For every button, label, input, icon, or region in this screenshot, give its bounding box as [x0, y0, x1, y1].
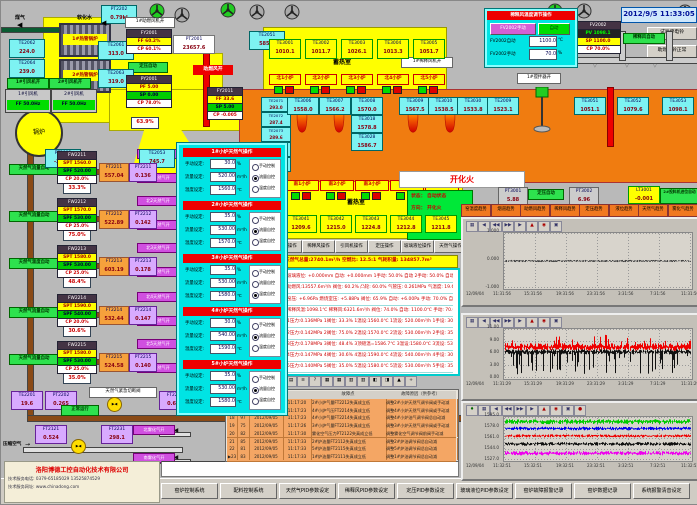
gas-ft-ft2214-value: 532.44 [100, 315, 128, 323]
te2201-box: TE2201 19.6 [11, 391, 43, 410]
radio-label: 流量自控 [259, 386, 275, 392]
y-axis-label: -1.000 [465, 284, 499, 289]
sensor-tag: TE2201 [12, 392, 42, 400]
field-input-manual[interactable]: 35.0 [210, 265, 236, 275]
chart-toolbar-icon[interactable]: ◉ [550, 405, 562, 416]
radio-icon [252, 334, 259, 341]
controller-title: PY2001 [127, 76, 171, 83]
gas-controller-fw2212: FW2212SPT 1570.0SPF 530.00CP 25.0% [57, 198, 97, 231]
crown-te-te3053: TE30531098.1 [662, 97, 694, 115]
radio-icon [252, 345, 259, 352]
trend-chart-2: ▦◀◀◀▶▶▶▲◉▣11.009.006.003.000.0012/09/041… [461, 313, 697, 401]
trend-button-5[interactable]: 定压趋势 [579, 204, 609, 217]
field-label: 手动设定: [185, 267, 204, 273]
feeder-auto-label: 2#投料机进位自动 [660, 188, 697, 204]
alarm-cell: 调整4#小炉油气调节阀总自动减 [385, 414, 458, 422]
radio-option[interactable]: 温度自控 [252, 237, 280, 247]
process-values-row: 3压力:0.178MPa 3阀位: 48.4% 3顶碹温=1586.7℃ 3温设… [287, 339, 453, 351]
field-input-flow[interactable]: 540.00 [210, 331, 236, 341]
field-input-temp[interactable]: 1590.0 [210, 344, 236, 354]
x-axis-label: 19:31:29 [556, 381, 574, 386]
alarm-cell: 4#小炉气量FT2214失真成立低 [311, 414, 387, 422]
north-te-te3004: TE30041013.3 [377, 39, 409, 59]
sensor-value: 298.1 [102, 434, 132, 442]
radio-option[interactable]: 手动控制 [252, 321, 280, 331]
x-axis-date: 12/09/04 [466, 291, 484, 296]
radio-option[interactable]: 温度自控 [252, 396, 280, 406]
status-row: 状态： 自动状态 [408, 191, 472, 203]
crown-te-te3007-tag: TE3007 [320, 98, 350, 106]
radio-option[interactable]: 流量自控 [252, 226, 280, 236]
pressure-auto-label-2: 定压自动 [528, 189, 564, 200]
chart-toolbar-icon[interactable]: ▣ [562, 405, 574, 416]
gas-controller-fw2214: FW2214SPT 1590.0SPF 540.00CP 20.0% [57, 294, 97, 327]
chart-toolbar-icon[interactable]: ▲ [526, 317, 538, 328]
alarm-toolbar-icon[interactable]: + [405, 376, 417, 387]
radio-option[interactable]: 手动控制 [252, 268, 280, 278]
manual-mode-button[interactable]: FV2002手动 [490, 23, 536, 35]
process-values-row: 2压力:0.142MPa 2阀位: 75.0% 2温设:1570.0℃ 2流设:… [287, 328, 453, 340]
gas-pt-pt2211: PT22110.136 [129, 163, 157, 182]
gas-ft-ft2214-tag: FT2214 [100, 307, 128, 315]
field-input-flow[interactable]: 530.00 [210, 225, 236, 235]
gas-pt-pt2213-tag: PT2213 [130, 258, 156, 266]
x-axis-label: 11:31:56 [681, 291, 697, 296]
chart-toolbar-icon[interactable]: ◉ [538, 221, 550, 232]
panel-title: 4#小炉天然气操作 [183, 307, 281, 316]
controller-title: FW2212 [58, 199, 96, 206]
alarm-cell: 2#小炉气量FT2212失真成立低 [311, 399, 387, 407]
crown-te-te3051-value: 1051.1 [575, 106, 605, 114]
radio-option[interactable]: 温度自控 [252, 343, 280, 353]
crown-te-te3051-tag: TE3051 [575, 98, 605, 106]
gas-pt-pt2212-tag: PT2212 [130, 211, 156, 219]
fan-status-label-2: 2#引风机开 [49, 78, 91, 89]
gas-pt-pt2215: PT22150.140 [129, 353, 157, 372]
radio-option[interactable]: 流量自控 [252, 279, 280, 289]
trend-button-4[interactable]: 稀释风趋势 [550, 204, 580, 217]
alarm-cell: 11:17:30 [283, 430, 312, 438]
north-te-te3002: TE30021011.7 [305, 39, 337, 59]
gas-pt-pt2212-value: 0.142 [130, 219, 156, 227]
radio-label: 温度自控 [259, 291, 275, 297]
crown-te-te3028-value: 1586.7 [352, 142, 382, 150]
alarm-cell: 2#炉油量FT2112失真成立低 [311, 438, 387, 446]
furnace-gas-panel-4: 4#小炉天然气操作手动设定:30.0%流量设定:540.00m³/h温度设定:1… [183, 307, 281, 357]
x-axis-date: 12/09/04 [466, 463, 484, 468]
alarm-row[interactable]: ▶23832012/09/0511:17:331#炉油量FT2111失真成立低调… [227, 453, 456, 462]
controller-cp: CP 20.0% [58, 318, 96, 326]
controller-spf: SPF 540.00 [58, 310, 96, 318]
gas-ft-ft2211-tag: FT2211 [100, 164, 128, 172]
fan-icon [149, 3, 165, 19]
radio-icon [252, 270, 259, 277]
field-input-manual[interactable]: 30.0 [210, 318, 236, 328]
radio-icon [252, 376, 259, 383]
radio-label: 手动控制 [259, 216, 275, 222]
north-te-te3001-tag: TE3001 [270, 40, 300, 48]
ops-button-5[interactable]: 玻璃液位操作 [401, 240, 434, 253]
radio-label: 流量自控 [259, 280, 275, 286]
alarm-toolbar-icon[interactable]: ▥ [357, 376, 369, 387]
bottom-button-5[interactable]: 定压PID参数设定 [397, 483, 454, 499]
crown-te-te3052-value: 1079.6 [618, 106, 648, 114]
field-unit: m³/h [237, 333, 247, 338]
radio-option[interactable]: 流量自控 [252, 332, 280, 342]
controller-spf: SPF 520.00 [58, 167, 96, 175]
manual-setpoint-input[interactable]: 70.0 [529, 49, 557, 60]
damper-position-box: 63.9% [131, 117, 159, 129]
indicator-red [321, 86, 330, 94]
alarm-cell: 2012/09/05 [249, 438, 284, 446]
pt3002-box: PT30026.96 [569, 187, 599, 205]
bottom-button-8[interactable]: 窑炉数据记录 [574, 483, 631, 499]
field-input-temp[interactable]: 1570.0 [210, 238, 236, 248]
north-te-te3004-value: 1013.3 [378, 48, 408, 56]
crown-te-te2009-value: 1523.1 [488, 106, 518, 114]
crown-te-te2009: TE20091523.1 [487, 97, 519, 115]
north-te-te3002-value: 1011.7 [306, 48, 336, 56]
gas-ft-ft2212-value: 522.89 [100, 219, 128, 227]
gas-controller-fw2211: FW2211SPT 1560.0SPF 520.00CP 20.0% [57, 151, 97, 184]
bottom-button-2[interactable]: 配料控制系统 [220, 483, 277, 499]
controller-cp: CP 25.0% [58, 269, 96, 277]
sensor-tag: PT2001 [174, 36, 214, 44]
alarm-cell: 调整雾化空气调节阀前阀手动减 [385, 430, 458, 438]
chart-toolbar-icon[interactable]: ▲ [526, 221, 538, 232]
crown-te-te3006-tag: TE3006 [288, 98, 318, 106]
controller-row: SP 1100.0 [576, 37, 620, 45]
auto-setpoint-label: FV2002自动 [490, 38, 515, 44]
field-label: 温度设定: [185, 293, 204, 299]
crown-te-te3030-tag: TE3030 [458, 98, 488, 106]
field-unit: m³/h [237, 227, 247, 232]
field-input-temp[interactable]: 1580.0 [210, 397, 236, 407]
field-label: 手动设定: [185, 214, 204, 220]
alarm-toolbar-icon[interactable]: ◨ [381, 376, 393, 387]
field-unit: % [237, 214, 241, 219]
alarm-cell: 3#小炉气量FT2213失真成立低 [311, 422, 387, 430]
lt3001-box: LT3001-0.001 [628, 186, 660, 204]
melter-te-te2073: TE2073289.6 [261, 127, 291, 142]
fy2011-controller: FY2011 FF 33.6 SP 5.00 CP -0.005 [207, 87, 243, 120]
controller-spf: SPF 530.00 [58, 357, 96, 365]
message-bar[interactable] [161, 461, 459, 477]
x-axis-label: 11:32:51 [681, 463, 697, 468]
field-unit: % [237, 267, 241, 272]
sensor-tag: FT2121 [36, 426, 66, 434]
x-axis-label: 3:31:29 [618, 381, 633, 386]
sensor-tag: PT2202 [102, 6, 136, 14]
field-input-manual[interactable]: 30.0 [210, 159, 236, 169]
controller-row: CP 60.1% [127, 45, 171, 53]
fan-icon [174, 7, 190, 23]
crown-te-te3009: TE30091567.5 [399, 97, 431, 115]
process-values-panel: 玻璃液位: +0.000mm 自动: +0.000mm 1手动: 50.0% 自… [284, 268, 460, 376]
ft2231-box: FT2231 298.1 [101, 425, 133, 444]
auto-setpoint-input[interactable]: 1100.0 [529, 36, 557, 47]
bottom-button-9[interactable]: 系统报警清音设定 [633, 483, 690, 499]
company-tel: 技术服务电话: 0379-65185029 13525874529 [8, 476, 159, 482]
alarm-cell: 5#炉油量FT2115失真成立低 [311, 445, 387, 453]
controller-row: CP -0.005 [208, 111, 242, 119]
gas-controller-fw2213: FW2213SPT 1580.0SPF 530.00CP 25.0% [57, 245, 97, 278]
company-info: 洛阳博德工控自动化技术有限公司 技术服务电话: 0379-65185029 13… [4, 461, 160, 503]
auto-mode-button[interactable]: 自动 [538, 23, 570, 35]
radio-option[interactable]: 手动控制 [252, 374, 280, 384]
radio-option[interactable]: 手动控制 [252, 215, 280, 225]
field-input-flow[interactable]: 520.00 [210, 172, 236, 182]
chart-toolbar-icon[interactable]: ▶ [526, 405, 538, 416]
radio-label: 手动控制 [259, 163, 275, 169]
alarm-toolbar-icon[interactable]: ▥ [345, 376, 357, 387]
radio-icon [252, 281, 259, 288]
field-unit: % [237, 373, 241, 378]
fan-unit-name: 1#引风机 [6, 90, 50, 100]
controller-row: CP 70.0% [576, 45, 620, 53]
alarm-cell: 调整5#炉油调节阀总自动减 [385, 445, 458, 453]
x-axis-label: 15:32:51 [524, 463, 542, 468]
process-values-row: 4压力:0.147MPa 4阀位: 30.6% 4温设:1590.0℃ 4流设:… [287, 350, 453, 362]
north-te-te3003: TE30031026.1 [341, 39, 373, 59]
controller-spt: SPT 1590.0 [58, 302, 96, 310]
sensor-value: 23657.6 [174, 44, 214, 52]
crown-te-te3030: TE30301533.8 [457, 97, 489, 115]
chart-toolbar-icon[interactable]: ▶ [514, 221, 526, 232]
alarm-cell: 11:17:20 [283, 399, 312, 407]
indicator-red [429, 86, 438, 94]
lt3001-box-tag: LT3001 [629, 187, 659, 195]
north-port-label-3: 北3小炉 [341, 74, 373, 85]
chart-toolbar-icon[interactable]: ▲ [538, 405, 550, 416]
trend-button-7[interactable]: 天然气趋势 [638, 204, 668, 217]
field-input-manual[interactable]: 35.0 [210, 371, 236, 381]
sensor-te2064-tag: TE2064 [10, 60, 44, 68]
bottom-button-1[interactable]: 窑炉控制系统 [161, 483, 218, 499]
y-axis-label: 3.00 [465, 362, 499, 367]
mode-radio-group: 手动控制流量自控温度自控 [249, 318, 281, 357]
alarm-cell: 11:17:33 [283, 453, 312, 461]
controller-title: FW2214 [58, 295, 96, 302]
gas-pt-pt2214-value: 0.147 [130, 315, 156, 323]
chart-toolbar-icon[interactable]: ▶▶ [502, 317, 514, 328]
gas-mode-label-5: 天然气流量自动 [9, 354, 59, 365]
sensor-te2064-value: 239.0 [10, 68, 44, 76]
gas-pt-pt2215-value: 0.140 [130, 362, 156, 370]
alarm-toolbar-icon[interactable]: ◧ [369, 376, 381, 387]
north-te-te3005-tag: TE3005 [414, 40, 444, 48]
trend-chart-1: ▦◀◀◀▶▶▶▲◉▣1.0000.000-1.00012/09/0411:31:… [461, 217, 697, 307]
damper-bar-right [607, 87, 614, 147]
field-label: 温度设定: [185, 187, 204, 193]
ft2121-box: FT2121 0.524 [35, 425, 67, 444]
radio-icon [252, 292, 259, 299]
trend-button-8[interactable]: 雾化气趋势 [668, 204, 697, 217]
north-te-te3003-tag: TE3003 [342, 40, 372, 48]
radio-icon [252, 164, 259, 171]
crown-te-te3008: TE30081570.0 [351, 97, 383, 115]
field-unit: % [237, 161, 241, 166]
south-te-te3042-tag: TE3042 [321, 216, 351, 224]
alarm-cell: 调整2#炉油调节阀总自动减 [385, 438, 458, 446]
alarm-toolbar-icon[interactable]: ▲ [393, 376, 405, 387]
fan-icon [284, 4, 300, 20]
alarm-toolbar-icon[interactable]: ? [309, 376, 321, 387]
south-te-te3044-tag: TE3044 [391, 216, 421, 224]
north-te-te3005: TE30051051.7 [413, 39, 445, 59]
south-te-te3045-value: 1211.8 [426, 224, 456, 232]
field-input-flow[interactable]: 530.00 [210, 278, 236, 288]
trend-button-3[interactable]: 助燃风趋势 [520, 204, 550, 217]
radio-option[interactable]: 流量自控 [252, 173, 280, 183]
valve-open-north-5: 北5天然气开 [137, 339, 179, 349]
crown-te-te3010-tag: TE3010 [429, 98, 459, 106]
ops-button-2[interactable]: 稀释风操作 [302, 240, 335, 253]
field-unit: ℃ [237, 293, 242, 298]
radio-label: 手动控制 [259, 322, 275, 328]
furnace-gas-panel-2: 2#小炉天然气操作手动设定:35.0%流量设定:530.00m³/h温度设定:1… [183, 201, 281, 251]
chart-toolbar-icon[interactable]: ▣ [550, 221, 562, 232]
radio-label: 温度自控 [259, 238, 275, 244]
chart-toolbar-icon[interactable]: ▶▶ [514, 405, 526, 416]
alarm-cell: 调整4#小炉天然气调节阀或手动减 [385, 407, 458, 415]
chart-toolbar-icon[interactable]: ▶ [514, 317, 526, 328]
bottom-button-6[interactable]: 玻璃液位PID参数设定 [456, 483, 513, 499]
emergency-valve-icon: ▶◀ [71, 439, 86, 454]
manual-setpoint-unit: % [558, 51, 562, 56]
radio-option[interactable]: 手动控制 [252, 162, 280, 172]
south-te-te3045-tag: TE3045 [426, 216, 456, 224]
gas-ft-ft2213: FT2213603.19 [99, 257, 129, 276]
crown-te-te3010-value: 1538.5 [429, 106, 459, 114]
alarm-cell: 2012/09/05 [249, 414, 284, 422]
radio-option[interactable]: 温度自控 [252, 184, 280, 194]
radio-icon [252, 217, 259, 224]
controller-title: FW2215 [58, 342, 96, 349]
north-port-label-1: 北1小炉 [269, 74, 301, 85]
gas-output-box: 48.4% [63, 277, 91, 288]
gas-pt-pt2213: PT22130.178 [129, 257, 157, 276]
y-axis-label: 1544.0 [465, 445, 499, 450]
melter-te-te2073-value: 289.6 [262, 135, 290, 141]
py2001-controller: PY2001 PF 5.00 SP 0.00 CP 78.0% [126, 75, 172, 108]
alarm-toolbar-icon[interactable]: ▦ [321, 376, 333, 387]
col-fault-point: 故障点 [311, 391, 385, 399]
field-input-temp[interactable]: 1560.0 [210, 185, 236, 195]
ops-button-4[interactable]: 定压操作 [368, 240, 401, 253]
x-axis-label: 23:32:51 [587, 463, 605, 468]
radio-option[interactable]: 流量自控 [252, 385, 280, 395]
alarm-toolbar-icon[interactable]: ≡ [297, 376, 309, 387]
fan-icon [249, 4, 265, 20]
pt3001-box: PT30015.88 [498, 187, 528, 205]
x-axis-label: 23:31:29 [587, 381, 605, 386]
south-te-te3042-value: 1215.0 [321, 224, 351, 232]
controller-spt: SPT 1570.0 [58, 206, 96, 214]
company-name: 洛阳博德工控自动化技术有限公司 [5, 465, 159, 474]
pipe [27, 149, 34, 421]
south-te-te3045: TE30451211.8 [425, 215, 457, 233]
fan-unit-name: 2#引风机 [52, 90, 96, 100]
crown-te-te3009-value: 1567.5 [400, 106, 430, 114]
field-input-flow[interactable]: 530.00 [210, 384, 236, 394]
controller-title: FY2001 [127, 30, 171, 37]
dilution-auto-label: 稀释风自动 [623, 33, 665, 44]
field-input-temp[interactable]: 1580.0 [210, 291, 236, 301]
field-unit: % [237, 320, 241, 325]
gas-output-box: 33.3% [63, 183, 91, 194]
indicator-green [382, 86, 391, 94]
controller-row: PV 1098.1 [576, 29, 620, 37]
chart-toolbar-icon[interactable]: ● [574, 405, 586, 416]
radio-label: 手动控制 [259, 375, 275, 381]
gas-output-box: 35.0% [63, 373, 91, 384]
radio-icon [252, 398, 259, 405]
ops-button-3[interactable]: 引风机操作 [335, 240, 368, 253]
x-axis-label: 7:31:56 [650, 291, 665, 296]
alarm-toolbar-icon[interactable]: ▦ [333, 376, 345, 387]
radio-label: 手动控制 [259, 269, 275, 275]
indicator-red [337, 192, 346, 200]
fan-unit-2: 2#引风机FF 50.0Hz [51, 89, 97, 113]
valve-open-north-3: 北3天然气开 [137, 243, 179, 253]
south-port-label-3: 南3小炉 [355, 180, 389, 191]
chart-toolbar-icon[interactable]: ▶▶ [502, 221, 514, 232]
south-port-label-2: 南2小炉 [320, 180, 354, 191]
indicator-green [396, 192, 405, 200]
bottom-button-7[interactable]: 窑炉故障报警记录 [515, 483, 572, 499]
south-te-te3044: TE30441212.8 [390, 215, 422, 233]
panel-title: 1#小炉天然气操作 [183, 148, 281, 157]
gas-mode-label-4: 天然气流量自动 [9, 307, 59, 318]
trend-button-2[interactable]: 烟道趋势 [491, 204, 521, 217]
crown-te-te3028: TE30281586.7 [351, 133, 383, 151]
field-input-manual[interactable]: 35.0 [210, 212, 236, 222]
gas-status-label: 正常运行 [61, 405, 99, 416]
chart-toolbar-icon[interactable]: ◉ [538, 317, 550, 328]
gas-inlet-label: 煤气 [15, 14, 25, 21]
fy2001-controller: FY2001 FF 60.2% CP 60.1% [126, 29, 172, 54]
indicator-green [361, 192, 370, 200]
gas-ft-ft2212: FT2212522.89 [99, 210, 129, 229]
bottom-button-4[interactable]: 稀释风PID参数设定 [338, 483, 395, 499]
clock: 2012/9/5 11:33:05 [621, 7, 697, 23]
x-axis-label: 15:31:56 [524, 291, 542, 296]
company-web: 技术服务网址: www.chinadong.com [8, 484, 159, 490]
controller-spt: SPT 1560.0 [58, 159, 96, 167]
x-axis-label: 11:31:29 [681, 381, 697, 386]
valve-open-north-4: 北4天然气开 [137, 292, 179, 302]
x-axis-label: 19:32:51 [556, 463, 574, 468]
controller-spt: SPT 1580.0 [58, 253, 96, 261]
field-unit: ℃ [237, 399, 242, 404]
trend-button-1[interactable]: 窑温度趋势 [461, 204, 491, 217]
furnace-gas-panel-1: 1#小炉天然气操作手动设定:30.0%流量设定:520.00m³/h温度设定:1… [183, 148, 281, 198]
radio-label: 温度自控 [259, 397, 275, 403]
trend-button-6[interactable]: 液位趋势 [609, 204, 639, 217]
controller-title: FW2211 [58, 152, 96, 159]
pt3001-box-value: 5.88 [499, 196, 527, 204]
radio-option[interactable]: 温度自控 [252, 290, 280, 300]
bottom-button-3[interactable]: 天然气PID参数设定 [279, 483, 336, 499]
chart-toolbar-icon[interactable]: ◀◀ [502, 405, 514, 416]
x-axis-label: 15:31:29 [524, 381, 542, 386]
soft-water-label: 软化水 [77, 14, 92, 21]
flow-arrow-icon: ◀ [17, 21, 22, 29]
process-values-row: 稀释风温:1098.1℃ 稀释风:6321.6m³/h 阀位: 74.0% 自动… [287, 305, 453, 317]
x-axis-label: 11:32:51 [493, 463, 511, 468]
chart-toolbar-icon[interactable]: ▣ [550, 317, 562, 328]
